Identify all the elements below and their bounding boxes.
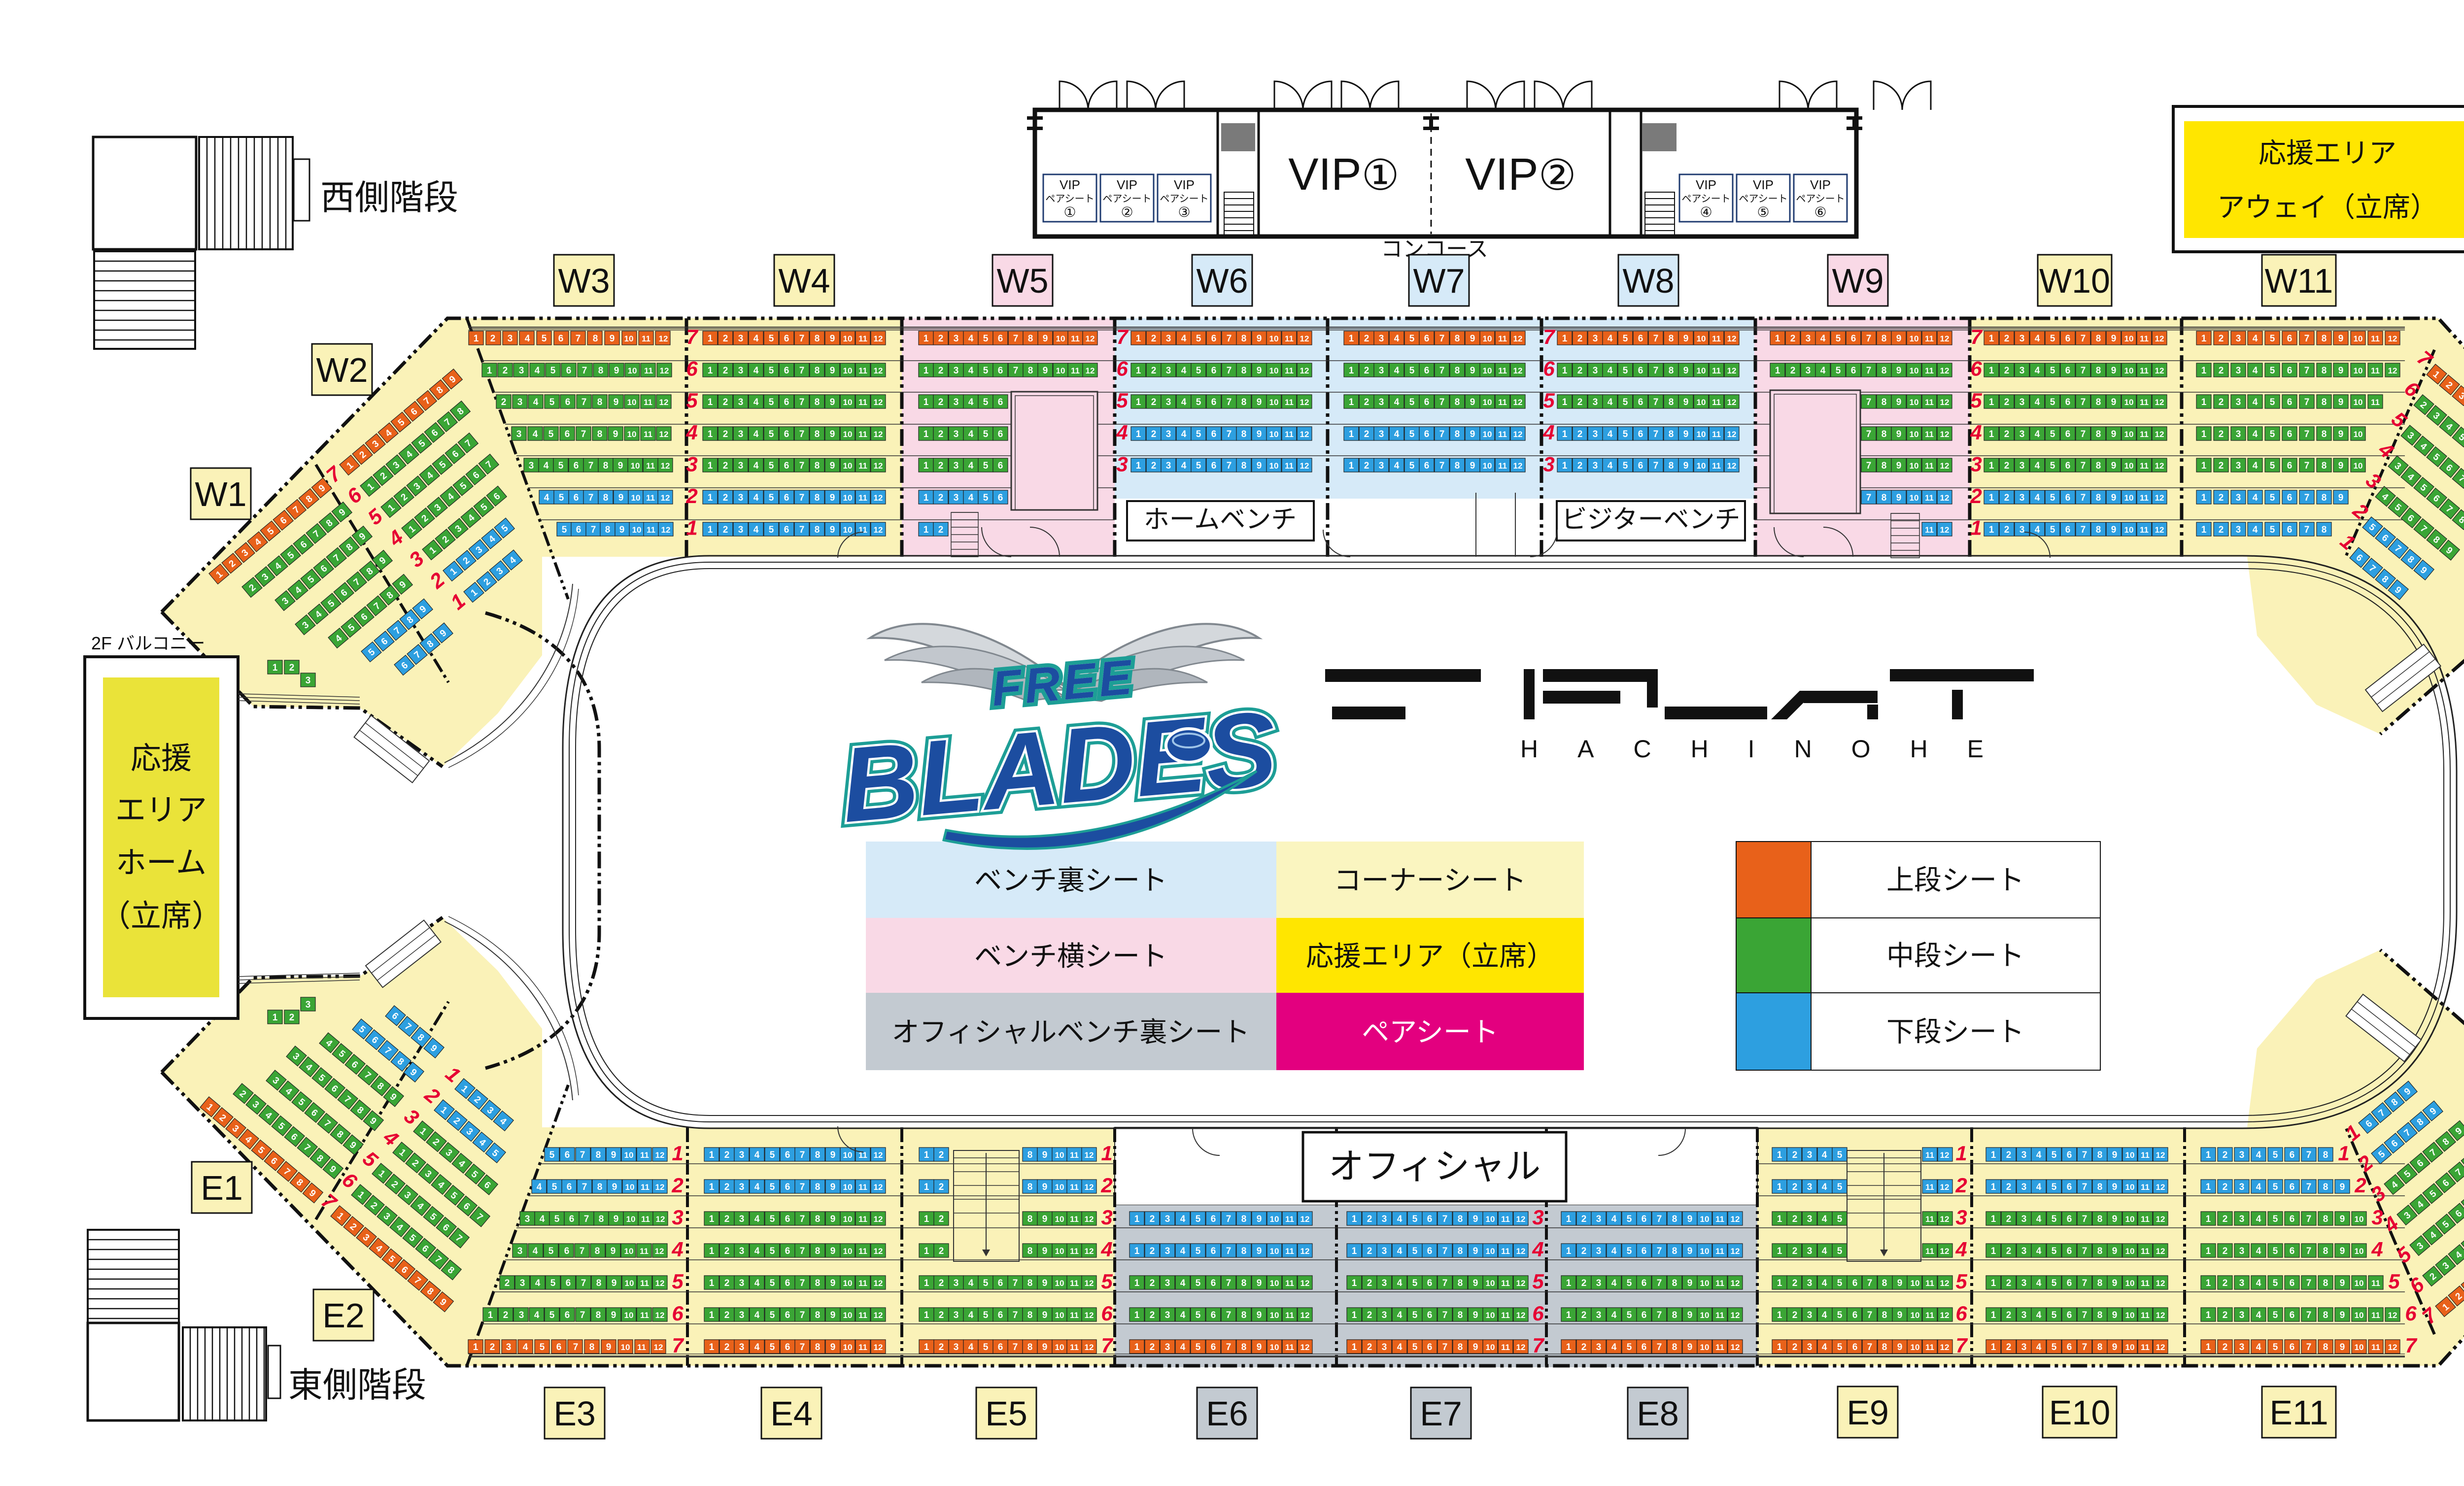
svg-text:7: 7 — [1653, 461, 1659, 471]
svg-text:1: 1 — [1991, 1182, 1996, 1192]
svg-text:4: 4 — [1180, 1310, 1186, 1320]
svg-text:7: 7 — [1866, 429, 1872, 439]
svg-text:12: 12 — [1727, 366, 1737, 375]
svg-text:1: 1 — [924, 397, 929, 407]
svg-text:8: 8 — [1669, 366, 1674, 376]
svg-text:10: 10 — [2125, 1247, 2135, 1256]
svg-text:1: 1 — [474, 334, 479, 344]
svg-text:11: 11 — [2140, 525, 2149, 535]
svg-text:5: 5 — [1409, 429, 1415, 439]
svg-text:9: 9 — [1257, 397, 1262, 407]
svg-text:5: 5 — [549, 1310, 555, 1320]
svg-text:4: 4 — [1822, 1342, 1827, 1352]
svg-text:2: 2 — [671, 1174, 683, 1197]
svg-text:2F バルコニー: 2F バルコニー — [91, 633, 205, 653]
svg-text:6: 6 — [1211, 461, 1217, 471]
svg-text:9: 9 — [1683, 461, 1689, 471]
svg-text:2: 2 — [1150, 1310, 1155, 1320]
svg-text:7: 7 — [2304, 334, 2310, 344]
svg-text:10: 10 — [1483, 398, 1492, 407]
svg-text:1: 1 — [708, 334, 713, 344]
svg-text:9: 9 — [2338, 397, 2344, 407]
svg-text:7: 7 — [1116, 325, 1129, 348]
svg-text:4: 4 — [968, 366, 974, 376]
svg-text:6: 6 — [2287, 334, 2293, 344]
svg-text:5: 5 — [1837, 1150, 1843, 1160]
svg-text:6: 6 — [1427, 1278, 1433, 1288]
svg-text:12: 12 — [1085, 1311, 1094, 1320]
svg-text:7: 7 — [1867, 1278, 1873, 1288]
svg-text:11: 11 — [1070, 1182, 1079, 1192]
svg-text:3: 3 — [1807, 1182, 1813, 1192]
svg-text:5: 5 — [1412, 1342, 1418, 1352]
svg-text:7: 7 — [1867, 1310, 1873, 1320]
svg-text:9: 9 — [618, 493, 624, 503]
svg-text:8: 8 — [2097, 1150, 2103, 1160]
svg-text:5: 5 — [1532, 1270, 1544, 1293]
svg-text:エリア: エリア — [115, 793, 207, 827]
svg-text:1: 1 — [709, 1278, 715, 1288]
svg-text:12: 12 — [1300, 1247, 1310, 1256]
svg-text:2: 2 — [723, 461, 728, 471]
svg-text:11: 11 — [640, 1150, 649, 1160]
svg-text:7: 7 — [1955, 1334, 1968, 1357]
svg-text:5: 5 — [1196, 334, 1201, 344]
svg-text:応援エリア: 応援エリア — [2259, 137, 2396, 169]
svg-text:3: 3 — [2021, 1182, 2027, 1192]
svg-text:4: 4 — [968, 1278, 974, 1288]
svg-text:11: 11 — [2371, 1343, 2380, 1352]
svg-text:2: 2 — [1364, 366, 1369, 376]
svg-text:VIP: VIP — [1174, 177, 1195, 192]
svg-text:9: 9 — [612, 1182, 617, 1192]
svg-text:2: 2 — [724, 1246, 730, 1256]
svg-text:5: 5 — [558, 461, 564, 471]
svg-text:8: 8 — [595, 1246, 600, 1256]
svg-text:9: 9 — [1042, 1182, 1048, 1192]
svg-text:10: 10 — [1911, 1311, 1920, 1320]
svg-text:10: 10 — [843, 1215, 853, 1224]
svg-text:8: 8 — [1241, 461, 1247, 471]
svg-text:オフィシャルベンチ裏シート: オフィシャルベンチ裏シート — [892, 1016, 1250, 1047]
svg-text:1: 1 — [1101, 1142, 1112, 1165]
svg-text:3: 3 — [519, 1310, 524, 1320]
svg-text:2: 2 — [724, 1182, 730, 1192]
svg-text:4: 4 — [1181, 397, 1187, 407]
svg-text:1: 1 — [1777, 1342, 1782, 1352]
svg-text:3: 3 — [1379, 366, 1384, 376]
svg-text:11: 11 — [2141, 1311, 2150, 1320]
svg-text:2: 2 — [1970, 484, 1982, 507]
svg-text:10: 10 — [843, 1150, 853, 1160]
svg-text:11: 11 — [1925, 461, 1934, 471]
svg-text:4: 4 — [968, 1310, 974, 1320]
svg-text:5: 5 — [548, 1246, 554, 1256]
svg-text:11: 11 — [1925, 1182, 1934, 1192]
svg-text:6: 6 — [672, 1302, 684, 1325]
svg-text:9: 9 — [2111, 366, 2117, 376]
svg-text:9: 9 — [611, 1310, 616, 1320]
svg-text:2: 2 — [1792, 1278, 1798, 1288]
svg-text:12: 12 — [655, 1182, 665, 1192]
svg-text:10: 10 — [1269, 334, 1279, 343]
svg-text:5: 5 — [770, 1150, 775, 1160]
svg-text:11: 11 — [1498, 430, 1507, 439]
svg-text:5: 5 — [550, 1278, 556, 1288]
svg-text:12: 12 — [874, 1279, 883, 1288]
svg-text:9: 9 — [830, 1150, 836, 1160]
svg-text:ホーム: ホーム — [116, 846, 206, 880]
svg-text:4: 4 — [2036, 1278, 2042, 1288]
svg-text:6: 6 — [2290, 1278, 2295, 1288]
svg-text:11: 11 — [858, 398, 867, 407]
svg-text:12: 12 — [1940, 1311, 1950, 1320]
svg-text:9: 9 — [2112, 1310, 2118, 1320]
svg-text:4: 4 — [1820, 366, 1826, 376]
svg-text:3: 3 — [2021, 1214, 2027, 1224]
svg-text:6: 6 — [1101, 1302, 1113, 1325]
svg-text:10: 10 — [2125, 1150, 2135, 1160]
svg-text:5: 5 — [769, 334, 774, 344]
svg-text:6: 6 — [2065, 334, 2071, 344]
svg-text:1: 1 — [1134, 1246, 1140, 1256]
svg-text:10: 10 — [1055, 1311, 1064, 1320]
svg-text:12: 12 — [874, 525, 883, 535]
svg-text:6: 6 — [2290, 1214, 2295, 1224]
svg-text:10: 10 — [1270, 1247, 1279, 1256]
svg-text:10: 10 — [1700, 1311, 1710, 1320]
svg-text:下段シート: 下段シート — [1886, 1016, 2024, 1047]
svg-text:8: 8 — [1458, 1310, 1463, 1320]
svg-text:7: 7 — [1866, 397, 1872, 407]
svg-text:4: 4 — [1542, 421, 1554, 444]
svg-text:9: 9 — [2338, 366, 2344, 376]
svg-text:12: 12 — [874, 493, 883, 503]
svg-text:2: 2 — [1577, 366, 1583, 376]
svg-text:4: 4 — [2035, 493, 2040, 503]
svg-text:7: 7 — [1970, 325, 1983, 348]
svg-text:8: 8 — [1882, 1342, 1887, 1352]
svg-text:1: 1 — [2201, 461, 2207, 471]
svg-text:12: 12 — [1300, 334, 1309, 343]
svg-text:10: 10 — [1910, 430, 1919, 439]
svg-text:3: 3 — [306, 675, 311, 686]
svg-text:10: 10 — [624, 334, 634, 343]
svg-text:9: 9 — [2340, 1310, 2345, 1320]
svg-text:11: 11 — [637, 1343, 646, 1352]
svg-text:3: 3 — [1970, 452, 1982, 475]
svg-text:1: 1 — [924, 1278, 929, 1288]
svg-text:5: 5 — [1970, 389, 1982, 412]
svg-text:10: 10 — [2354, 430, 2363, 439]
svg-text:9: 9 — [830, 366, 835, 376]
svg-text:3: 3 — [1166, 334, 1171, 344]
svg-text:6: 6 — [1211, 1246, 1216, 1256]
svg-text:7: 7 — [2306, 1342, 2312, 1352]
svg-text:10: 10 — [1910, 493, 1919, 503]
svg-text:9: 9 — [614, 1214, 619, 1224]
svg-text:5: 5 — [1627, 1278, 1632, 1288]
svg-text:3: 3 — [2019, 493, 2025, 503]
svg-text:6: 6 — [566, 1278, 571, 1288]
svg-text:5: 5 — [770, 1342, 775, 1352]
svg-text:12: 12 — [1085, 1247, 1094, 1256]
svg-text:1: 1 — [1562, 334, 1568, 344]
svg-text:2: 2 — [724, 1278, 730, 1288]
svg-text:3: 3 — [1596, 1246, 1602, 1256]
svg-text:8: 8 — [2323, 1310, 2328, 1320]
svg-text:5: 5 — [769, 525, 774, 535]
svg-text:3: 3 — [739, 1150, 745, 1160]
svg-text:E10: E10 — [2049, 1393, 2111, 1432]
svg-text:11: 11 — [644, 430, 652, 439]
svg-text:ペアシート: ペアシート — [1362, 1016, 1499, 1047]
svg-text:6: 6 — [1424, 461, 1430, 471]
svg-text:3: 3 — [954, 334, 959, 344]
svg-text:5: 5 — [2050, 493, 2055, 503]
svg-text:2: 2 — [724, 1150, 730, 1160]
svg-text:12: 12 — [2155, 525, 2164, 535]
svg-text:9: 9 — [1896, 334, 1902, 344]
svg-text:7: 7 — [2081, 334, 2086, 344]
svg-text:11: 11 — [2140, 398, 2149, 407]
svg-text:8: 8 — [1028, 366, 1033, 376]
svg-text:1: 1 — [1566, 1342, 1572, 1352]
svg-text:6: 6 — [1642, 1246, 1647, 1256]
svg-text:オフィシャル: オフィシャル — [1329, 1147, 1541, 1186]
svg-text:7: 7 — [584, 1214, 589, 1224]
svg-text:3: 3 — [2239, 1182, 2245, 1192]
svg-text:12: 12 — [1516, 1247, 1526, 1256]
svg-text:10: 10 — [2355, 1311, 2364, 1320]
svg-text:10: 10 — [1700, 1279, 1710, 1288]
svg-text:3: 3 — [508, 334, 513, 344]
svg-text:11: 11 — [2140, 366, 2149, 375]
svg-text:9: 9 — [1687, 1278, 1693, 1288]
svg-text:11: 11 — [1498, 334, 1507, 343]
svg-text:11: 11 — [1285, 398, 1294, 407]
svg-text:1: 1 — [924, 334, 929, 344]
svg-text:9: 9 — [2111, 525, 2117, 535]
svg-text:VIP: VIP — [1117, 177, 1137, 192]
svg-text:4: 4 — [1822, 1310, 1827, 1320]
svg-text:12: 12 — [1940, 1215, 1950, 1224]
svg-text:4: 4 — [1180, 1342, 1186, 1352]
svg-text:4: 4 — [754, 1342, 760, 1352]
svg-text:10: 10 — [2125, 1311, 2135, 1320]
svg-text:4: 4 — [753, 366, 759, 376]
svg-text:8: 8 — [1027, 1342, 1033, 1352]
svg-text:12: 12 — [1731, 1215, 1740, 1224]
svg-text:1: 1 — [273, 663, 278, 673]
svg-text:2: 2 — [938, 366, 944, 376]
svg-text:11: 11 — [1070, 1343, 1079, 1352]
svg-text:6: 6 — [2287, 397, 2293, 407]
svg-text:7: 7 — [580, 1310, 585, 1320]
svg-text:3: 3 — [2236, 429, 2241, 439]
svg-text:10: 10 — [1483, 334, 1492, 343]
svg-text:12: 12 — [874, 1247, 883, 1256]
svg-text:4: 4 — [535, 1278, 541, 1288]
svg-text:8: 8 — [2323, 1214, 2328, 1224]
svg-text:9: 9 — [1473, 1342, 1478, 1352]
svg-text:10: 10 — [632, 525, 642, 535]
svg-text:2: 2 — [938, 461, 944, 471]
svg-text:9: 9 — [1257, 1278, 1262, 1288]
svg-text:8: 8 — [1672, 1310, 1677, 1320]
svg-text:8: 8 — [596, 1150, 601, 1160]
svg-text:6: 6 — [1211, 366, 1217, 376]
svg-text:8: 8 — [1882, 461, 1887, 471]
svg-text:1: 1 — [1352, 1246, 1357, 1256]
svg-text:5: 5 — [686, 389, 698, 412]
svg-text:2: 2 — [2219, 334, 2224, 344]
svg-text:8: 8 — [1882, 493, 1887, 503]
svg-text:4: 4 — [968, 1342, 974, 1352]
svg-text:3: 3 — [1543, 452, 1554, 475]
svg-text:10: 10 — [843, 334, 853, 343]
svg-text:6: 6 — [998, 493, 1003, 503]
svg-text:1: 1 — [1970, 516, 1982, 540]
svg-text:2: 2 — [1577, 461, 1583, 471]
svg-text:7: 7 — [1442, 1342, 1448, 1352]
svg-text:5: 5 — [1196, 429, 1201, 439]
svg-text:12: 12 — [1940, 1279, 1950, 1288]
svg-text:4: 4 — [2256, 1246, 2261, 1256]
svg-text:11: 11 — [640, 1247, 649, 1256]
svg-text:10: 10 — [1910, 398, 1919, 407]
svg-text:9: 9 — [1042, 1150, 1048, 1160]
svg-text:7: 7 — [800, 1182, 805, 1192]
svg-text:12: 12 — [2388, 1311, 2397, 1320]
svg-text:7: 7 — [582, 366, 587, 376]
svg-text:1: 1 — [1989, 397, 1994, 407]
svg-text:4: 4 — [1181, 366, 1187, 376]
svg-text:2: 2 — [1364, 461, 1369, 471]
svg-text:3: 3 — [2019, 461, 2025, 471]
svg-text:3: 3 — [1165, 1342, 1170, 1352]
svg-text:4: 4 — [968, 334, 974, 344]
svg-text:2: 2 — [2219, 525, 2224, 535]
svg-text:12: 12 — [2156, 1279, 2165, 1288]
svg-text:9: 9 — [1687, 1310, 1693, 1320]
svg-text:8: 8 — [1455, 334, 1460, 344]
svg-text:9: 9 — [1470, 397, 1475, 407]
svg-text:8: 8 — [596, 1278, 602, 1288]
svg-text:5: 5 — [983, 366, 989, 376]
svg-text:上段シート: 上段シート — [1886, 865, 2024, 896]
svg-text:9: 9 — [830, 1246, 836, 1256]
svg-text:10: 10 — [843, 525, 853, 535]
svg-text:6: 6 — [784, 493, 789, 503]
svg-text:5: 5 — [1955, 1270, 1967, 1293]
svg-text:3: 3 — [672, 1206, 683, 1229]
svg-text:6: 6 — [1427, 1246, 1433, 1256]
svg-text:11: 11 — [858, 1343, 867, 1352]
svg-text:9: 9 — [1687, 1342, 1693, 1352]
svg-text:12: 12 — [655, 1279, 665, 1288]
svg-text:9: 9 — [1897, 1310, 1903, 1320]
svg-text:6: 6 — [998, 334, 1003, 344]
svg-text:11: 11 — [1712, 398, 1721, 407]
svg-text:2: 2 — [1790, 366, 1796, 376]
svg-text:11: 11 — [2140, 493, 2149, 503]
svg-text:6: 6 — [566, 366, 572, 376]
svg-text:12: 12 — [1300, 366, 1309, 375]
svg-text:8: 8 — [1455, 429, 1460, 439]
svg-text:W3: W3 — [558, 262, 610, 300]
svg-text:6: 6 — [1642, 1342, 1647, 1352]
svg-text:10: 10 — [1911, 1279, 1920, 1288]
svg-text:2: 2 — [2004, 429, 2010, 439]
svg-text:5: 5 — [2273, 1278, 2278, 1288]
svg-text:6: 6 — [565, 397, 571, 407]
svg-text:3: 3 — [2239, 1278, 2245, 1288]
svg-text:6: 6 — [567, 1182, 572, 1192]
svg-text:9: 9 — [2111, 461, 2117, 471]
svg-text:6: 6 — [785, 1310, 790, 1320]
svg-text:11: 11 — [2371, 334, 2380, 343]
svg-text:12: 12 — [1085, 1215, 1094, 1224]
svg-text:3: 3 — [529, 461, 534, 471]
svg-text:8: 8 — [1027, 1214, 1033, 1224]
svg-text:8: 8 — [2097, 1342, 2103, 1352]
svg-text:11: 11 — [858, 1215, 867, 1224]
svg-text:5: 5 — [1196, 366, 1201, 376]
svg-text:9: 9 — [1683, 334, 1689, 344]
svg-text:7: 7 — [2081, 461, 2086, 471]
svg-text:11: 11 — [644, 366, 653, 375]
svg-text:4: 4 — [1822, 1278, 1827, 1288]
svg-text:4: 4 — [2253, 525, 2258, 535]
svg-text:6: 6 — [2065, 429, 2071, 439]
svg-text:5: 5 — [2052, 1150, 2057, 1160]
svg-text:8: 8 — [2096, 366, 2101, 376]
svg-text:10: 10 — [621, 1343, 630, 1352]
svg-text:2: 2 — [723, 366, 728, 376]
svg-text:6: 6 — [1638, 366, 1643, 376]
svg-text:7: 7 — [1226, 1310, 1232, 1320]
svg-text:9: 9 — [619, 525, 625, 535]
svg-text:4: 4 — [525, 334, 530, 344]
svg-text:10: 10 — [1270, 1279, 1279, 1288]
svg-text:10: 10 — [2124, 525, 2134, 535]
svg-text:8: 8 — [2097, 1246, 2103, 1256]
svg-text:5: 5 — [1837, 1246, 1843, 1256]
svg-text:5: 5 — [983, 493, 989, 503]
svg-text:12: 12 — [2155, 430, 2164, 439]
svg-text:12: 12 — [1085, 1182, 1094, 1192]
svg-text:1: 1 — [924, 1182, 929, 1192]
svg-text:2: 2 — [2219, 397, 2224, 407]
svg-text:7: 7 — [800, 1342, 805, 1352]
svg-text:1: 1 — [1989, 525, 1994, 535]
svg-text:2: 2 — [724, 1310, 730, 1320]
svg-text:1: 1 — [924, 1310, 929, 1320]
svg-text:11: 11 — [1715, 1279, 1724, 1288]
svg-text:9: 9 — [614, 366, 619, 376]
svg-text:7: 7 — [800, 1278, 805, 1288]
svg-text:9: 9 — [1257, 1246, 1262, 1256]
svg-text:10: 10 — [1700, 1247, 1710, 1256]
svg-text:4: 4 — [2036, 1150, 2042, 1160]
svg-text:6: 6 — [2290, 1182, 2295, 1192]
svg-text:5: 5 — [1196, 1214, 1201, 1224]
svg-text:11: 11 — [1715, 1215, 1724, 1224]
svg-text:1: 1 — [2206, 1214, 2211, 1224]
svg-text:7: 7 — [581, 429, 586, 439]
svg-text:12: 12 — [1940, 525, 1950, 535]
